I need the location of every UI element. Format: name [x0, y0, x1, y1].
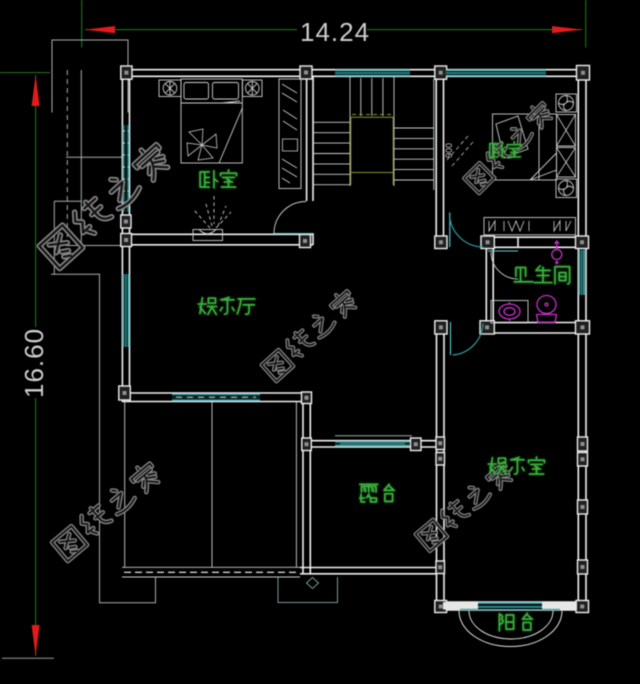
- svg-text:14.24: 14.24: [300, 17, 370, 47]
- svg-text:16.60: 16.60: [19, 328, 49, 398]
- svg-text:900: 900: [444, 143, 454, 158]
